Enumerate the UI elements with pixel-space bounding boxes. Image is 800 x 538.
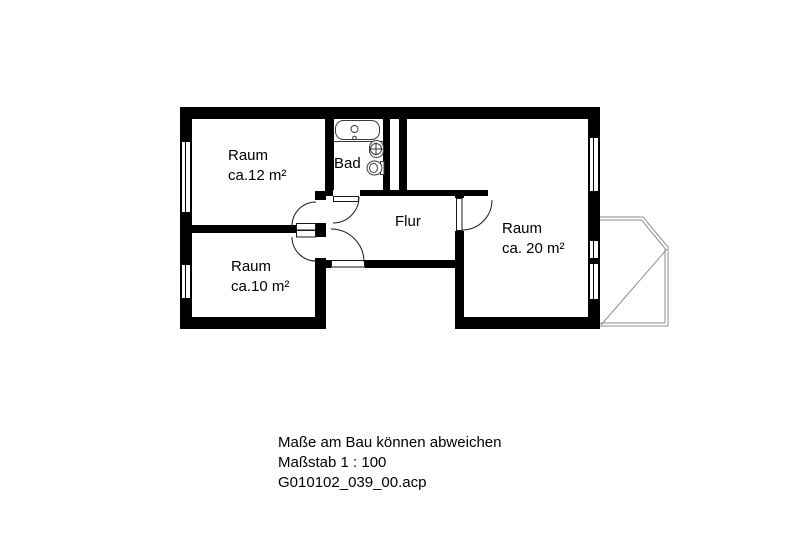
window-cap <box>182 212 190 218</box>
floor-plan: Raum ca.12 m² Bad Raum ca.10 m² Flur Rau… <box>0 0 800 538</box>
door-bad-arc <box>333 197 359 223</box>
room-label-raum12: Raum ca.12 m² <box>228 146 286 186</box>
footer-filename: G010102_039_00.acp <box>278 473 501 493</box>
door-raum10-arc <box>292 237 316 261</box>
window-cap <box>590 132 598 138</box>
window-mullion <box>593 132 594 197</box>
window-right-upper <box>589 132 599 197</box>
wall-bad-left <box>325 119 334 196</box>
wall-shaft-right <box>399 119 407 196</box>
room-name: Raum <box>228 146 286 166</box>
toilet-icon <box>367 161 384 175</box>
window-cap <box>182 298 190 304</box>
window-cap <box>182 136 190 142</box>
balcony <box>600 217 668 326</box>
door-raum12-leaf <box>297 224 316 231</box>
opening-raum10-door <box>315 237 326 258</box>
room-label-flur: Flur <box>395 212 421 232</box>
door-raum12-arc <box>292 202 316 226</box>
window-left-lower <box>181 259 191 304</box>
bathtub-icon <box>334 121 383 142</box>
wall-shaft-left <box>383 119 390 196</box>
room-label-raum10: Raum ca.10 m² <box>231 257 289 297</box>
room-name: Raum <box>231 257 289 277</box>
wall-room-divider <box>186 225 298 233</box>
footer-scale: Maßstab 1 : 100 <box>278 453 501 473</box>
balcony-outline-outer <box>600 217 668 326</box>
wall-outer-top <box>180 107 600 119</box>
window-left-upper <box>181 136 191 218</box>
room-name: Flur <box>395 212 421 232</box>
room-name: Bad <box>334 154 361 174</box>
room-area: ca.10 m² <box>231 277 289 297</box>
door-bad <box>333 197 359 224</box>
window-mullion <box>185 136 186 218</box>
window-right-lower <box>589 235 599 305</box>
room-label-bad: Bad <box>334 154 361 174</box>
door-entrance-arc <box>331 229 364 262</box>
sink-icon <box>370 141 384 158</box>
door-raum20-arc <box>462 200 492 230</box>
wall-outer-bottom-left <box>180 317 326 329</box>
window-mullion <box>593 235 594 305</box>
plan-footer: Maße am Bau können abweichen Maßstab 1 :… <box>278 433 501 493</box>
balcony-outline-inner <box>600 220 665 323</box>
room-area: ca.12 m² <box>228 166 286 186</box>
window-cap <box>590 258 598 264</box>
door-raum10 <box>292 231 316 262</box>
room-name: Raum <box>502 219 565 239</box>
balcony-diagonal-line <box>601 249 667 325</box>
room-label-raum20: Raum ca. 20 m² <box>502 219 565 259</box>
window-cap <box>182 259 190 265</box>
opening-raum12-door <box>315 200 326 223</box>
window-cap <box>590 191 598 197</box>
footer-disclaimer: Maße am Bau können abweichen <box>278 433 501 453</box>
wall-outer-bottom-right <box>455 317 600 329</box>
opening-entrance-door <box>331 260 365 268</box>
room-area: ca. 20 m² <box>502 239 565 259</box>
opening-bad-door <box>333 190 360 196</box>
window-cap <box>590 299 598 305</box>
window-cap <box>590 235 598 241</box>
opening-raum20-door <box>455 198 464 231</box>
door-raum10-leaf <box>297 231 316 238</box>
door-bad-leaf <box>334 197 359 202</box>
